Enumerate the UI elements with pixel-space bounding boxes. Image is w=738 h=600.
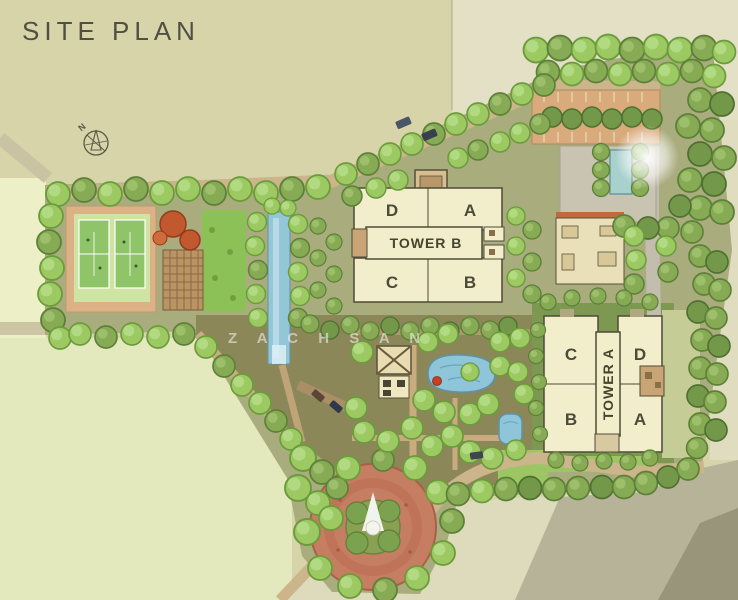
tower-b-wing-c: C <box>386 273 398 292</box>
page-title: SITE PLAN <box>22 16 200 46</box>
tower-a-label: TOWER A <box>600 348 616 420</box>
site-plan-page: D A C B TOWER B C D B A TOWER A <box>0 0 738 600</box>
tower-b-wing-b: B <box>464 273 476 292</box>
waterfall <box>272 345 286 364</box>
tower-a-wing-b: B <box>565 410 577 429</box>
tower-b-wing-d: D <box>386 201 398 220</box>
tower-b-label: TOWER B <box>390 235 463 251</box>
tower-a-wing-a: A <box>634 410 646 429</box>
tower-a-wing-d: D <box>634 345 646 364</box>
tower-b-wing-a: A <box>464 201 476 220</box>
scan-glare-spot <box>615 125 679 189</box>
tennis-courts <box>66 206 156 312</box>
pergola-trellis <box>163 250 203 310</box>
clubhouse-pavilion <box>377 346 411 398</box>
tennis-court-1 <box>79 220 109 288</box>
watermark: Z A C H S A N <box>228 330 428 347</box>
red-umbrella <box>433 377 442 386</box>
tennis-court-2 <box>115 220 145 288</box>
kids-pool <box>499 414 522 444</box>
site-plan-drawing: D A C B TOWER B C D B A TOWER A <box>0 0 738 600</box>
tower-a-wing-c: C <box>565 345 577 364</box>
